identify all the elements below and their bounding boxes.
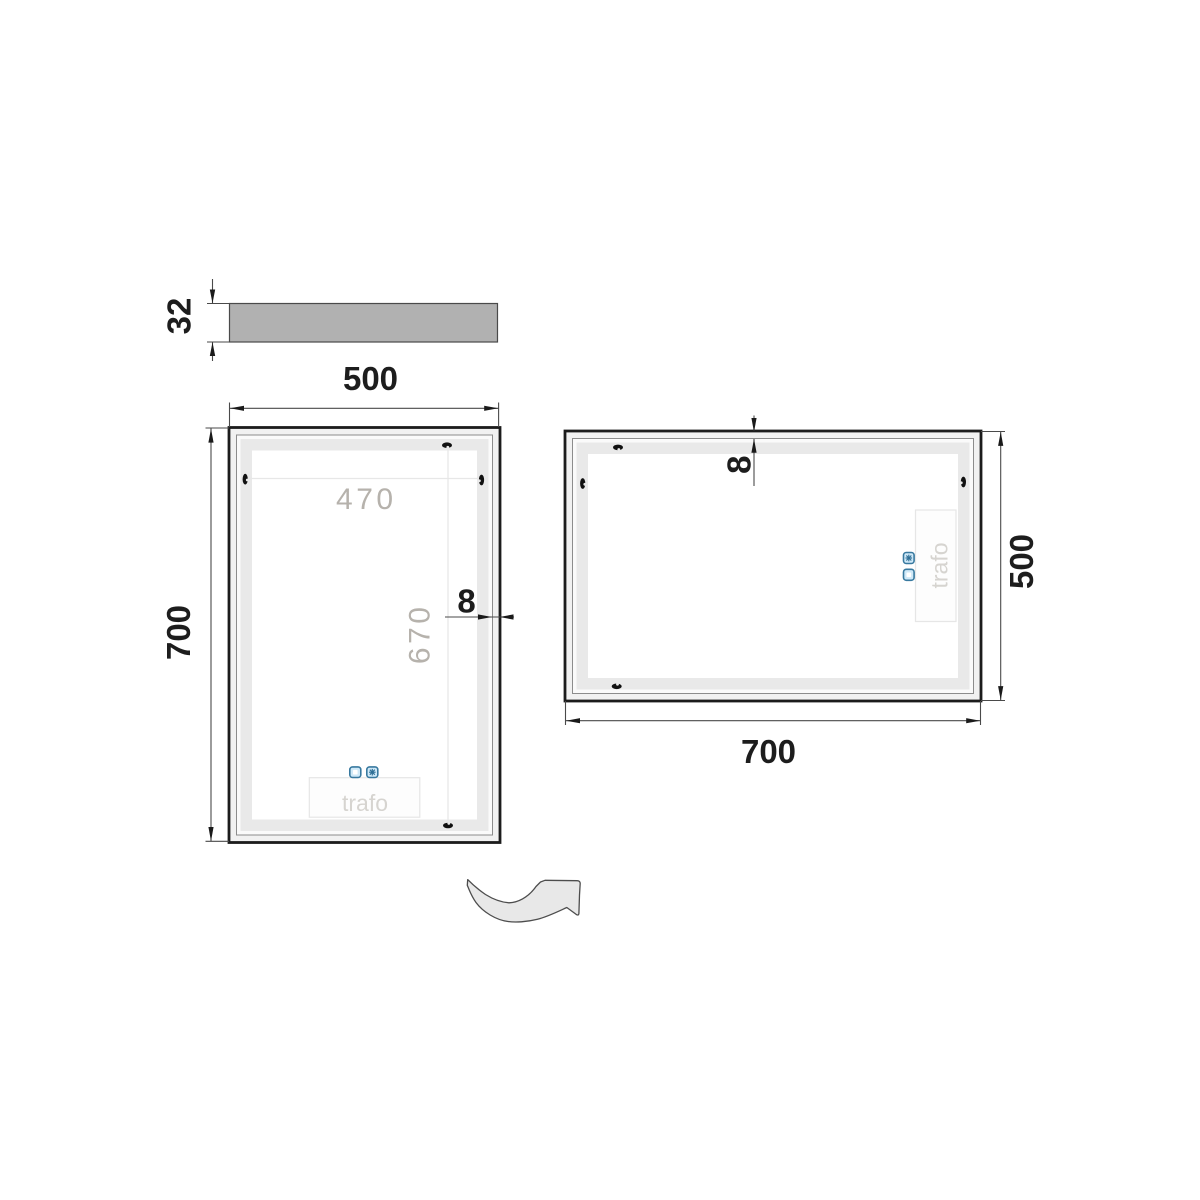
svg-text:670: 670	[404, 604, 437, 665]
svg-text:8: 8	[721, 456, 758, 474]
svg-text:8: 8	[457, 583, 475, 620]
svg-text:trafo: trafo	[342, 790, 388, 816]
svg-text:470: 470	[336, 483, 397, 516]
svg-text:700: 700	[160, 605, 197, 660]
svg-text:500: 500	[343, 360, 398, 397]
svg-text:trafo: trafo	[927, 542, 953, 588]
svg-text:500: 500	[1003, 534, 1040, 589]
svg-text:700: 700	[741, 733, 796, 770]
svg-text:32: 32	[161, 298, 198, 335]
